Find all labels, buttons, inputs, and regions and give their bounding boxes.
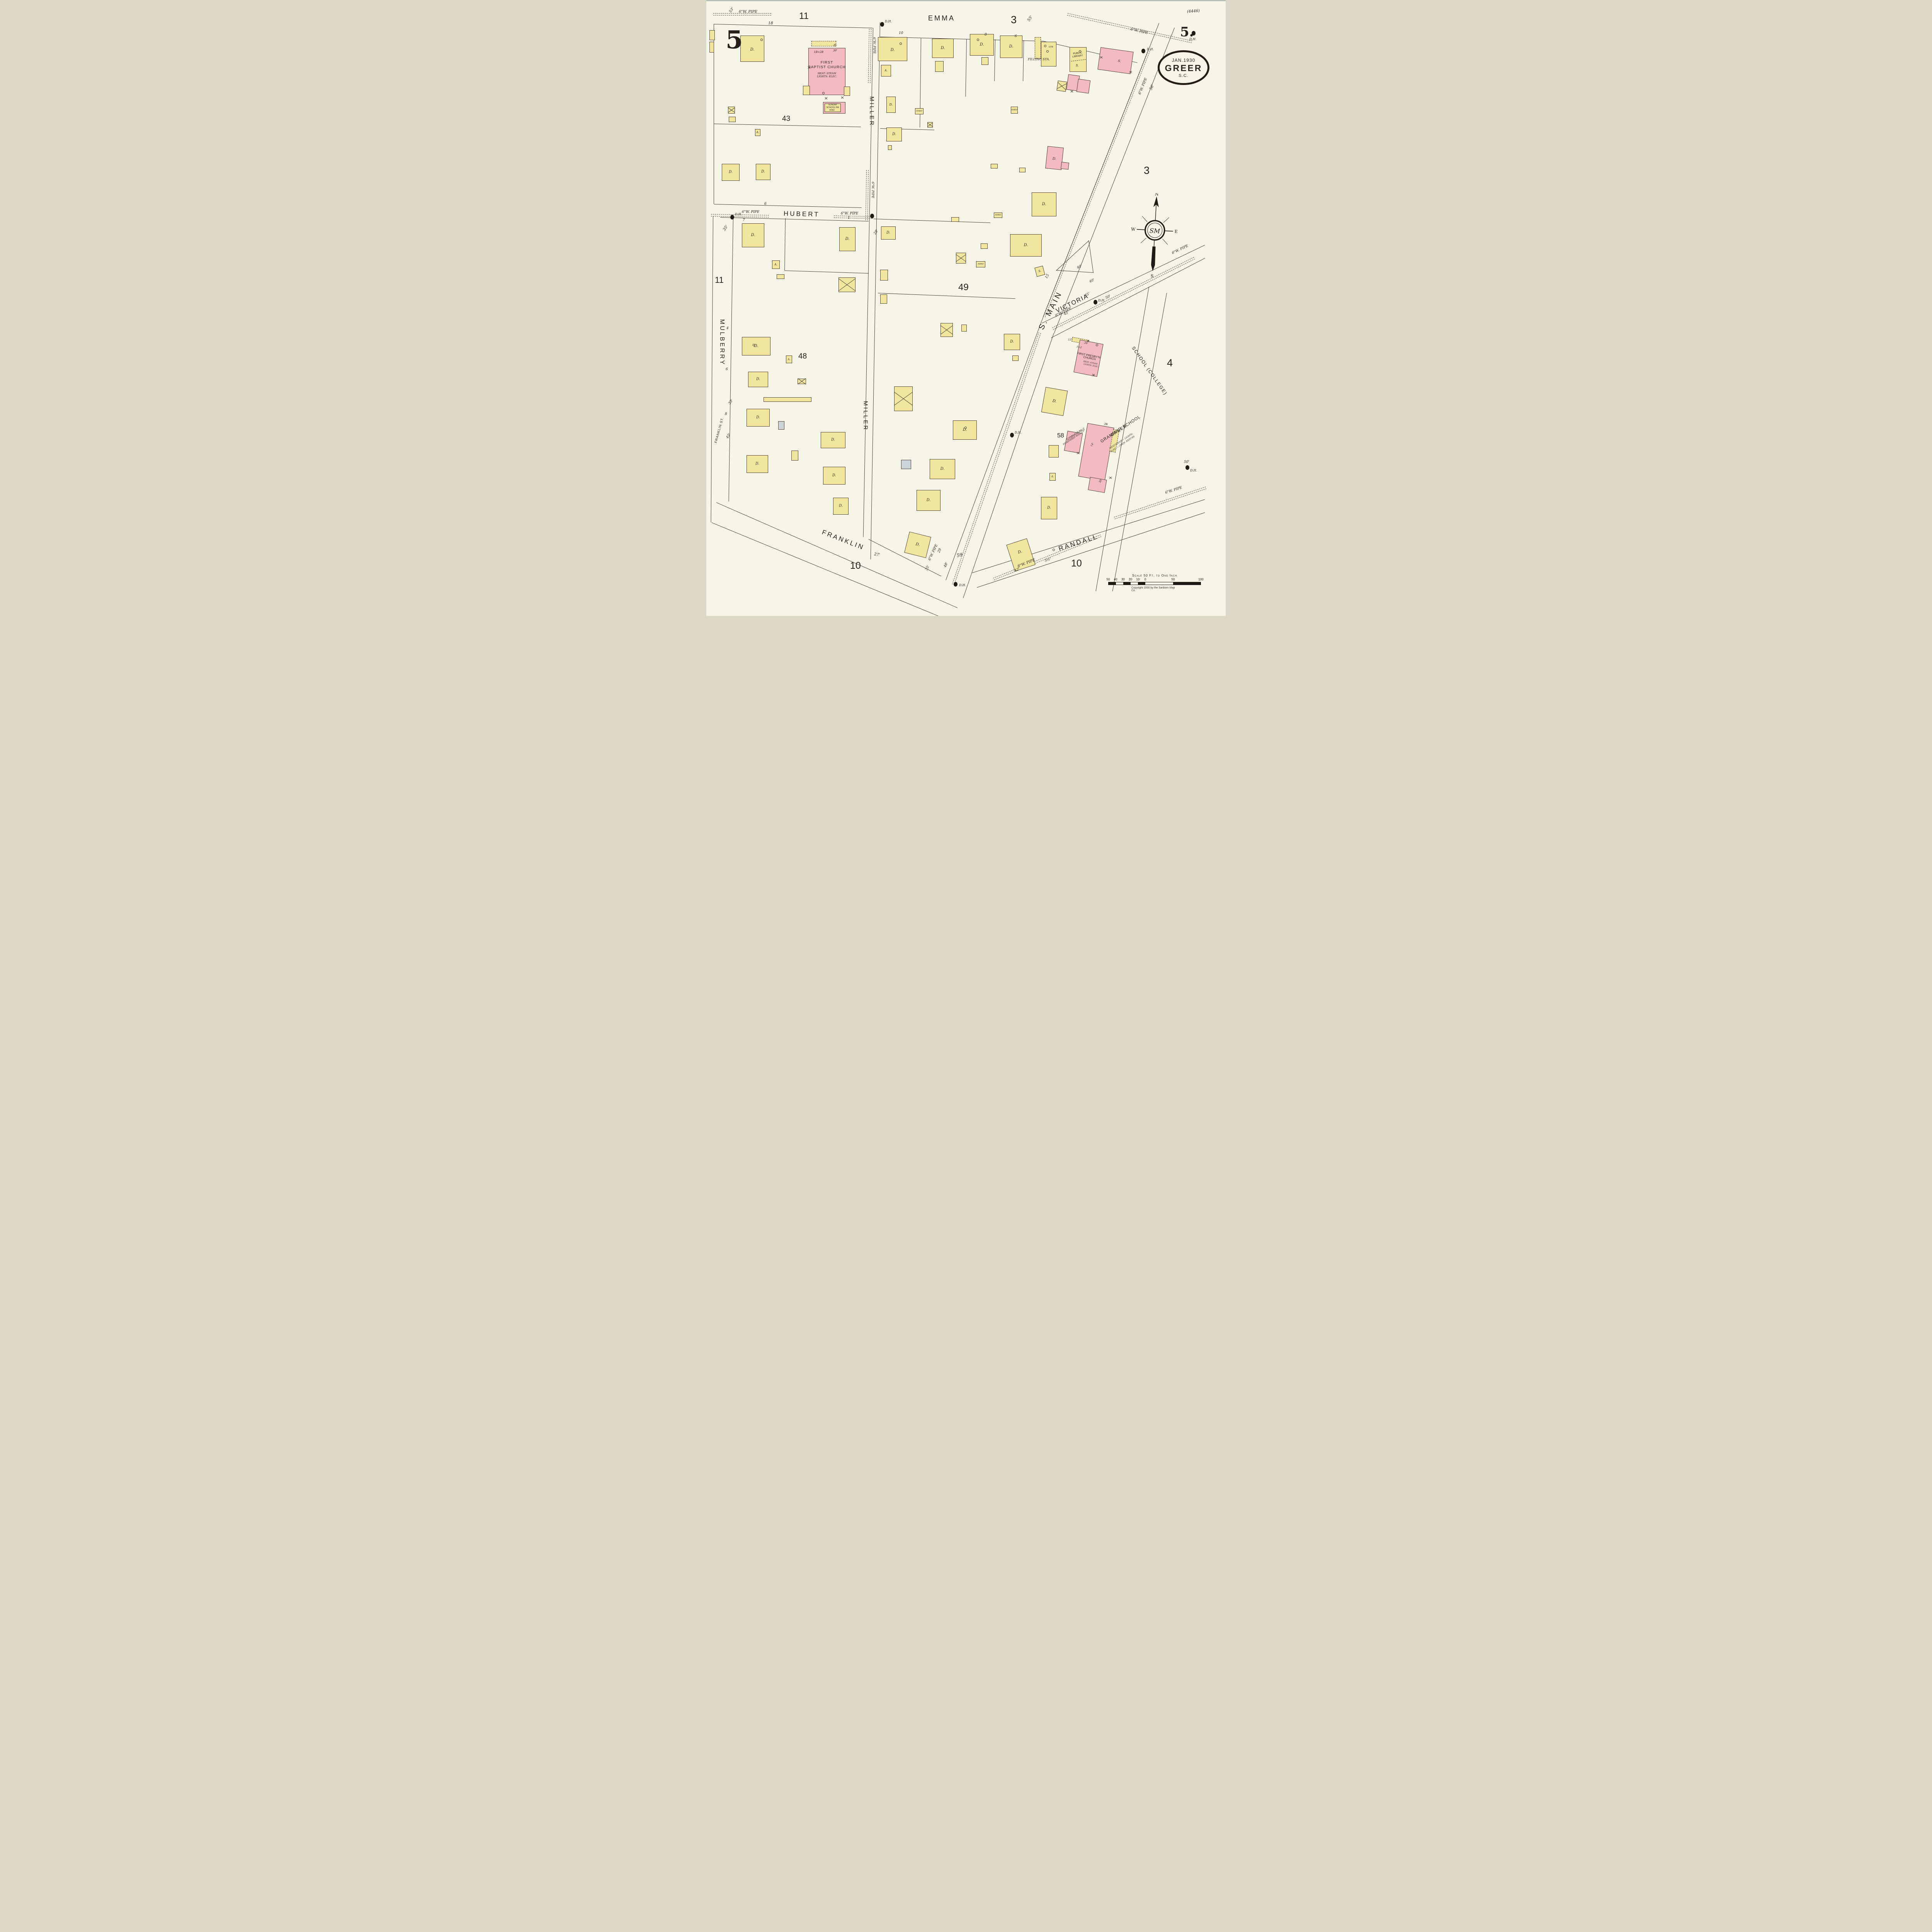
pipe-label: 6"W. PIPE [871,182,874,198]
dimension-label: 5½' [1044,558,1052,563]
parcel-line [878,293,1015,299]
height-code: 2B [1104,423,1108,426]
chimney-icon [900,43,902,45]
chimney-icon [1096,344,1098,346]
building-long-shed [764,397,811,402]
building-brick [1061,162,1069,170]
building-iron-clad [901,460,911,469]
block-number-10-left: 10 [850,561,861,571]
water-pipe-line [866,170,869,220]
dwelling-label: D. [891,48,895,52]
x-mark-icon [841,96,844,99]
parcel-line [994,39,995,81]
parcel-line [874,219,990,223]
building-stable [798,379,806,384]
school-annex [1088,477,1107,493]
page-number-top-left: 5 [726,28,743,53]
dwelling-label: D. [1047,507,1051,510]
building-frame [709,30,715,40]
house-number: 7 [743,219,745,222]
building-dwelling: D. [742,223,764,247]
dwelling-label: D. [832,474,836,478]
building-dwelling: D. [722,164,740,181]
hydrant-dot [880,22,884,27]
street-label-hubert: HUBERT [784,210,820,218]
sanborn-map-sheet: D. A. D. D. 1B=2B 30' FIRST BAPTIST CHUR… [706,0,1226,616]
dimension-label: 33' [728,399,734,406]
franklin-st-edge [711,216,713,522]
pipe-label: 6"W. PIPE [739,10,757,14]
store-label: S. [1076,64,1079,67]
building-dwelling: D. [1004,334,1020,350]
plate-reference: (4446) [1187,9,1200,14]
building-dwelling: D. [886,97,896,113]
dimension-label: 55' [1027,15,1034,22]
building-shed: SHED [976,261,985,267]
water-pipe-line [1067,13,1192,43]
street-label-miller-north: MILLER [869,97,875,127]
house-number: 6 [726,368,728,371]
building-garage: A. [772,260,780,269]
x-mark-icon [1092,373,1095,376]
dwelling-label: D. [1017,550,1022,555]
garage-label: A. [756,131,759,134]
building-garage: A. [786,355,792,363]
title-state: S.C. [1179,73,1188,78]
store-label: S. [1038,270,1041,273]
hydrant-dot [730,215,734,219]
building-dwelling: D. [833,498,849,515]
building-garage: A. [1049,473,1056,481]
building-stable [838,277,855,292]
church-name: FIRST [821,61,833,65]
dwelling-label: D. [751,233,755,237]
dimension-label: 30' [1082,427,1086,432]
dimension-label: 40' [1089,278,1095,284]
hydrant-dot [1185,465,1189,470]
dwelling-label: D. [1009,45,1014,49]
scale-caption: Scale 50 Ft. to One Inch [1132,573,1177,577]
pipe-label: 6"W. PIPE [1165,486,1183,495]
hydrant-dot [1094,300,1097,304]
building-dwelling: D. [904,532,931,558]
chimney-icon [822,92,825,94]
front-dimension: 30' [833,49,837,52]
building-dwelling: D. [970,34,994,56]
house-number: 6 [1015,35,1017,38]
building-frame [880,270,888,281]
compass-north-label: N [1155,192,1159,197]
street-label-franklin-st: FRANKLIN ST. [714,417,724,444]
building-iron-clad [778,421,784,430]
dwelling-label: D. [839,505,843,508]
hydrant-label: D.H. [1098,299,1105,302]
hydrant-dot [1010,433,1014,437]
block-edge-line [714,204,862,208]
building-garage: A. [755,129,760,136]
chimney-icon [753,344,755,346]
hydrant-label: D.H. [735,213,742,216]
gas-tank-icon [1046,50,1049,53]
dwelling-label: D. [845,237,850,241]
parcel-line [965,39,967,97]
chimney-icon [1053,549,1055,551]
building-dwelling: D. [1010,234,1042,257]
dwelling-label: D. [886,231,890,235]
dwelling-label: D. [729,171,733,174]
parcel-line [785,270,869,274]
hydrant-label: D.H. [1190,469,1197,472]
dwelling-label: D. [915,543,920,547]
hydrant-label: D.H. [1147,48,1154,51]
block-number-49: 49 [958,283,969,292]
dimension-label: 42' [1014,568,1020,573]
dimension-label: 28' [873,229,879,236]
building-dwelling: D. [886,128,902,141]
building-shed: SHED [1011,107,1018,114]
building-frame [1049,445,1059,457]
house-number: 10 [899,32,903,35]
house-number: 8 [725,413,727,416]
dwelling-label: D. [756,378,760,381]
parcel-line [1023,40,1024,81]
hydrant-dot [954,582,957,587]
scale-tick: 50 [1107,578,1110,581]
shed-label: SHED [995,214,1001,216]
building-dwelling: D. [756,164,770,180]
building-dwelling: D. [821,432,845,448]
page-number-top-right: 5. [1180,26,1194,39]
church-wing [844,87,850,96]
compass-south-tail [1151,247,1156,271]
gas-tank-note: GT8 [1049,46,1053,49]
pipe-label: 6"W. PIPE [928,544,939,561]
compass-monogram: SM [1150,227,1161,235]
street-label-emma: EMMA [928,15,955,22]
hydrant-dot [1141,49,1145,53]
dwelling-label: D. [941,46,945,50]
church-heat-note: HEAT: STEAM [818,72,836,75]
building-frame [777,274,784,279]
dimension-label: 50' [1184,461,1189,464]
scale-tick: 10 [1136,578,1139,581]
s-main-street-edge [963,333,1054,598]
dwelling-label: D. [1052,399,1057,404]
dwelling-label: D. [761,170,765,174]
street-label-mulberry: MULBERRY [719,319,725,366]
scan-artifact [706,0,1226,1]
x-mark-icon [825,97,828,100]
block-number-59: 59 [956,552,963,558]
building-stable [927,122,933,128]
title-date: JAN.1930 [1172,58,1196,63]
block-number-11-left: 11 [715,276,724,284]
x-mark-icon [808,66,811,69]
dimension-label: 27' [874,553,880,557]
building-dwelling: D. [1041,387,1068,416]
garage-label: A. [1051,476,1054,478]
x-mark-icon [1109,476,1112,479]
gas-tank-icon [1044,45,1046,47]
dwelling-label: D. [831,439,835,442]
block-number-3-top: 3 [1011,15,1017,25]
building-dwelling: D. [742,337,770,355]
house-number: 4 [726,327,729,330]
dwelling-label: D. [756,416,760,420]
block-number-4: 4 [1167,358,1173,368]
block-number-58: 58 [1057,433,1064,439]
scale-bar: Scale 50 Ft. to One Inch 50 40 30 20 10 … [1108,573,1201,591]
chimney-icon [964,427,967,429]
pipe-label: 6"W. PIPE [742,211,760,214]
dwelling-label: D. [755,463,759,466]
sunday-school-label: SUNDAY [828,104,837,106]
dimension-label: 40' [1077,264,1083,270]
garage-label: A. [774,264,777,266]
dwelling-label: D. [1042,202,1046,206]
sunday-school-label: SCHOOL RM [826,107,839,109]
chimney-icon [834,44,836,46]
hydrant-label: D.H. [959,584,966,587]
dimension-label: 15 [1045,274,1050,279]
shed-label: SHED [978,264,983,265]
building-dwelling: D. [1032,192,1056,216]
building-stable [728,107,735,114]
mulberry-street-edge [728,217,733,502]
map-title-cartouche: JAN.1930 GREER S.C. [1158,50,1209,85]
chimney-icon [977,39,979,41]
building-dwelling: D. [747,455,768,473]
water-pipe-line [868,29,871,83]
pipe-label: 6"W. PIPE [841,212,859,216]
dwelling-label: D. [1052,157,1056,161]
shed-label: SHED [1011,109,1017,111]
dwelling-label: D. [927,498,931,502]
hydrant-label: D.H. [885,20,892,23]
scale-tick: 40 [1114,578,1117,581]
house-number: 8 [985,33,987,37]
parcel-line [784,218,786,270]
building-dwelling: D. [823,467,845,485]
building-dwelling: D. [878,37,907,61]
block-number-3-right: 3 [1144,165,1150,176]
building-dwelling: D. [917,490,940,511]
building-shed: SHED [994,213,1002,218]
building-dwelling: D. [1000,36,1022,58]
building-frame [729,117,736,122]
dimension-label: 18 [768,22,773,26]
building-store: S. [1034,266,1045,277]
building-frame [791,451,798,461]
traffic-island-line [1088,240,1094,273]
title-city: GREER [1165,63,1202,73]
building-dwelling: D. [747,409,770,427]
building-frame [880,294,887,304]
s-main-street-edge [1054,28,1175,333]
building-store-brick: S. [1097,47,1133,74]
block-number-10-right: 10 [1071,559,1082,568]
building-frame [709,42,714,53]
building-brick [1077,79,1090,94]
church-lights-note: LIGHTS: ELEC. [817,75,837,78]
building-dwelling: D. [839,227,855,251]
x-mark-icon [1077,451,1080,454]
building-dwelling: D. [932,39,954,58]
building-dwelling: D. [881,226,896,240]
dwelling-label: D. [889,103,893,106]
dwelling-label: D. [1024,243,1028,247]
street-label-franklin: FRANKLIN [821,529,865,551]
x-mark-icon [1100,56,1103,59]
building-shed: SHED [915,108,923,114]
dimension-label: 48' [944,562,949,568]
pipe-label: 6"W. PIPE [1138,78,1148,95]
hydrant-dot [870,214,874,218]
filling-station [1041,42,1056,66]
scale-tick: 30 [1121,578,1125,581]
building-frame [991,164,998,168]
dimension-label: 29 [937,548,942,553]
building-dwelling: D. [930,459,955,479]
block-edge-line [714,124,861,127]
compass-south-label: S [1150,274,1153,279]
building-stable [1056,80,1067,92]
house-number: 1 [848,216,850,220]
building-frame [935,61,944,72]
store-label: S. [1118,60,1121,63]
compass-east-label: E [1174,229,1178,234]
building-frame [1012,355,1019,361]
building-garage: A. [881,65,891,77]
scale-rule [1108,582,1201,585]
building-frame [981,243,988,249]
scale-tick: 0 [1145,578,1146,581]
scale-tick: 100 [1198,578,1203,581]
compass-west-label: W [1131,227,1136,232]
block-number-11-top: 11 [799,12,809,21]
dwelling-label: D. [1010,340,1014,344]
height-code: 1B=2B [814,51,823,54]
building-dwelling: D. [953,420,977,440]
building-stable [894,386,913,411]
x-mark-icon [1129,70,1132,73]
block-number-43: 43 [782,115,790,122]
building-stable [940,323,953,337]
building-dwelling: D. [1041,497,1057,519]
building-frame [1019,168,1026,172]
shed-label: SHED [916,111,922,112]
height-code: 1=2 [1076,345,1082,349]
church-name: BAPTIST CHURCH [808,65,845,69]
x-mark-icon [1087,339,1090,342]
compass-rose: SM N E W S [1127,192,1182,280]
pipe-label: 6"W. PIPE [872,37,876,54]
dwelling-label: D. [750,48,755,52]
dimension-label: 35' [723,224,729,231]
dwelling-label: D. [892,133,896,136]
scale-tick: 50 [1172,578,1175,581]
chimney-icon [1079,50,1081,53]
dimension-label: 45' [726,433,731,440]
garage-label: A. [788,358,791,361]
garage-label: A. [884,70,887,72]
building-stable [956,253,966,264]
dwelling-label: D. [940,467,945,471]
block-number-48: 48 [798,352,807,360]
wall-dimension: 12" [1068,338,1072,341]
sunday-school-label: VEND [829,110,835,112]
house-number: 6 [764,202,767,206]
church-wing [803,86,810,95]
x-mark-icon [1070,90,1073,93]
filling-station-label: FILLING STA. [1028,58,1050,61]
copyright-notice: Copyright 1930 by the Sanborn Map Co. [1131,587,1178,592]
building-frame [1035,37,1041,59]
church-porch [811,41,836,46]
dwelling-label: D. [980,43,984,47]
street-label-miller-south: MILLER [863,401,869,431]
building-frame [961,325,967,332]
building-frame [888,145,892,150]
dimension-label: 53' [729,7,735,14]
scale-tick: 20 [1129,578,1132,581]
building-frame [981,57,988,65]
chimney-icon [760,39,763,41]
building-dwelling: D. [748,372,768,387]
building-frame [951,217,959,222]
hydrant-label: D.H. [1015,431,1022,434]
